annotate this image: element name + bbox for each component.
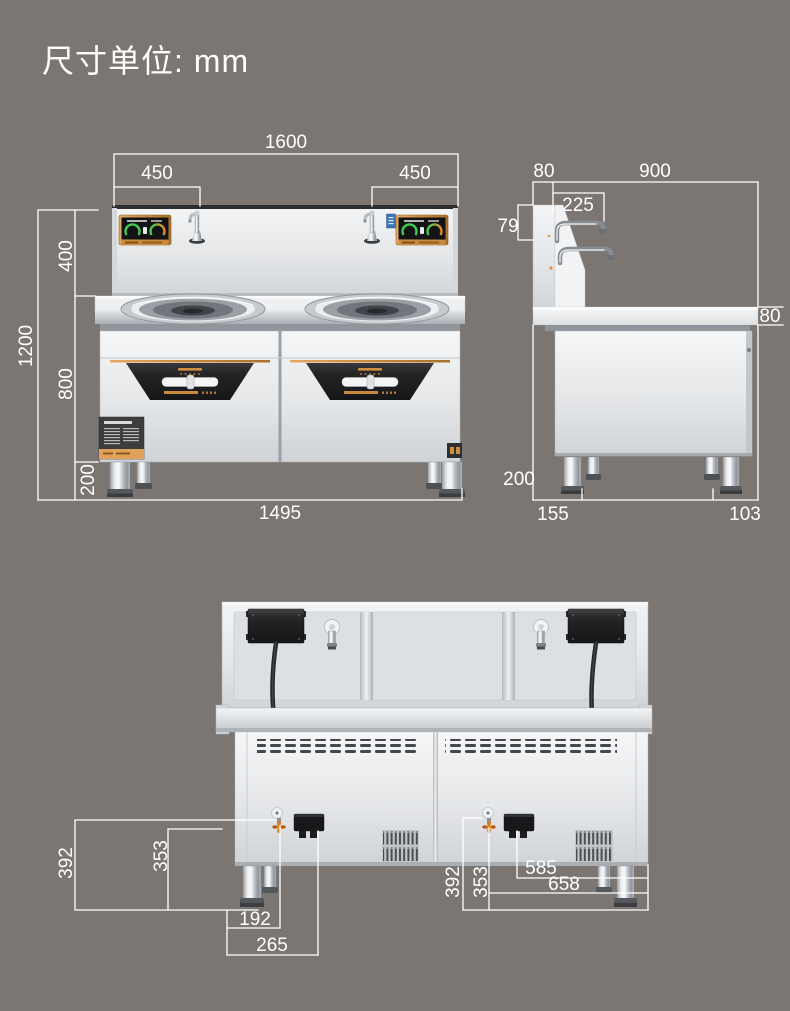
side-legs bbox=[561, 457, 742, 494]
dim-front-backsplash-height: 400 bbox=[56, 240, 77, 272]
louver-vent-right bbox=[445, 739, 617, 755]
dim-rear-left-inlet-offset: 192 bbox=[239, 909, 271, 930]
junction-box-left bbox=[246, 609, 306, 643]
front-legs bbox=[107, 462, 465, 497]
side-view: 80 900 225 79 80 200 155 103 bbox=[497, 161, 783, 525]
dim-rear-left-connector-height: 353 bbox=[151, 840, 172, 872]
slider-knob bbox=[367, 375, 374, 389]
junction-box-right bbox=[566, 609, 626, 643]
dim-front-body-height: 800 bbox=[56, 368, 77, 400]
dim-side-rear-leg-inset: 103 bbox=[729, 504, 761, 525]
slider-knob bbox=[187, 375, 194, 389]
rear-panel-seam bbox=[502, 612, 515, 700]
control-panel-right bbox=[396, 215, 448, 245]
rear-rail bbox=[216, 705, 652, 734]
dimension-diagram: 尺寸单位: mm bbox=[0, 0, 790, 1011]
spec-label bbox=[99, 417, 144, 459]
dim-front-base-width: 1495 bbox=[259, 503, 301, 524]
slot-vent-right bbox=[575, 830, 613, 862]
louver-vent-left bbox=[257, 739, 420, 755]
dim-front-overall-width: 1600 bbox=[265, 132, 307, 153]
dim-rear-right-inlet-offset: 658 bbox=[548, 874, 580, 895]
side-backsplash bbox=[533, 205, 555, 310]
dim-rear-right-connector-height: 353 bbox=[471, 866, 492, 898]
control-panel-left bbox=[119, 215, 171, 245]
front-view: 1600 450 450 1200 400 800 200 1495 bbox=[16, 132, 465, 524]
dim-side-depth: 900 bbox=[639, 161, 671, 182]
dim-side-backsplash-thickness: 80 bbox=[533, 161, 554, 182]
diagram-canvas: 1600 450 450 1200 400 800 200 1495 bbox=[0, 0, 790, 1011]
rear-panel-seam bbox=[360, 612, 373, 700]
dim-side-spout-reach: 225 bbox=[562, 195, 594, 216]
power-indicator-box bbox=[447, 443, 462, 458]
dim-rear-right-inlet-height: 392 bbox=[443, 866, 464, 898]
dim-side-counter-thickness: 80 bbox=[759, 306, 780, 327]
dim-front-leg-height: 200 bbox=[78, 464, 99, 496]
wok-right bbox=[305, 294, 449, 324]
dim-front-right-burner: 450 bbox=[399, 163, 431, 184]
certification-sticker bbox=[387, 214, 396, 228]
rear-view: 392 353 192 265 392 353 585 658 bbox=[56, 602, 652, 956]
dim-side-front-leg-inset: 155 bbox=[537, 504, 569, 525]
side-countertop bbox=[533, 307, 758, 331]
dim-rear-left-connector-offset: 265 bbox=[256, 935, 288, 956]
slot-vent-left bbox=[382, 830, 419, 862]
dim-front-left-burner: 450 bbox=[141, 163, 173, 184]
dim-side-leg-height: 200 bbox=[503, 469, 535, 490]
dim-side-spout-height: 79 bbox=[497, 216, 518, 237]
dim-front-total-height: 1200 bbox=[16, 325, 37, 367]
side-cabinet bbox=[555, 331, 752, 456]
dim-rear-left-inlet-height: 392 bbox=[56, 847, 77, 879]
side-handle-hole bbox=[747, 348, 751, 352]
front-backsplash-top-edge bbox=[112, 205, 458, 209]
wok-left bbox=[121, 294, 265, 324]
